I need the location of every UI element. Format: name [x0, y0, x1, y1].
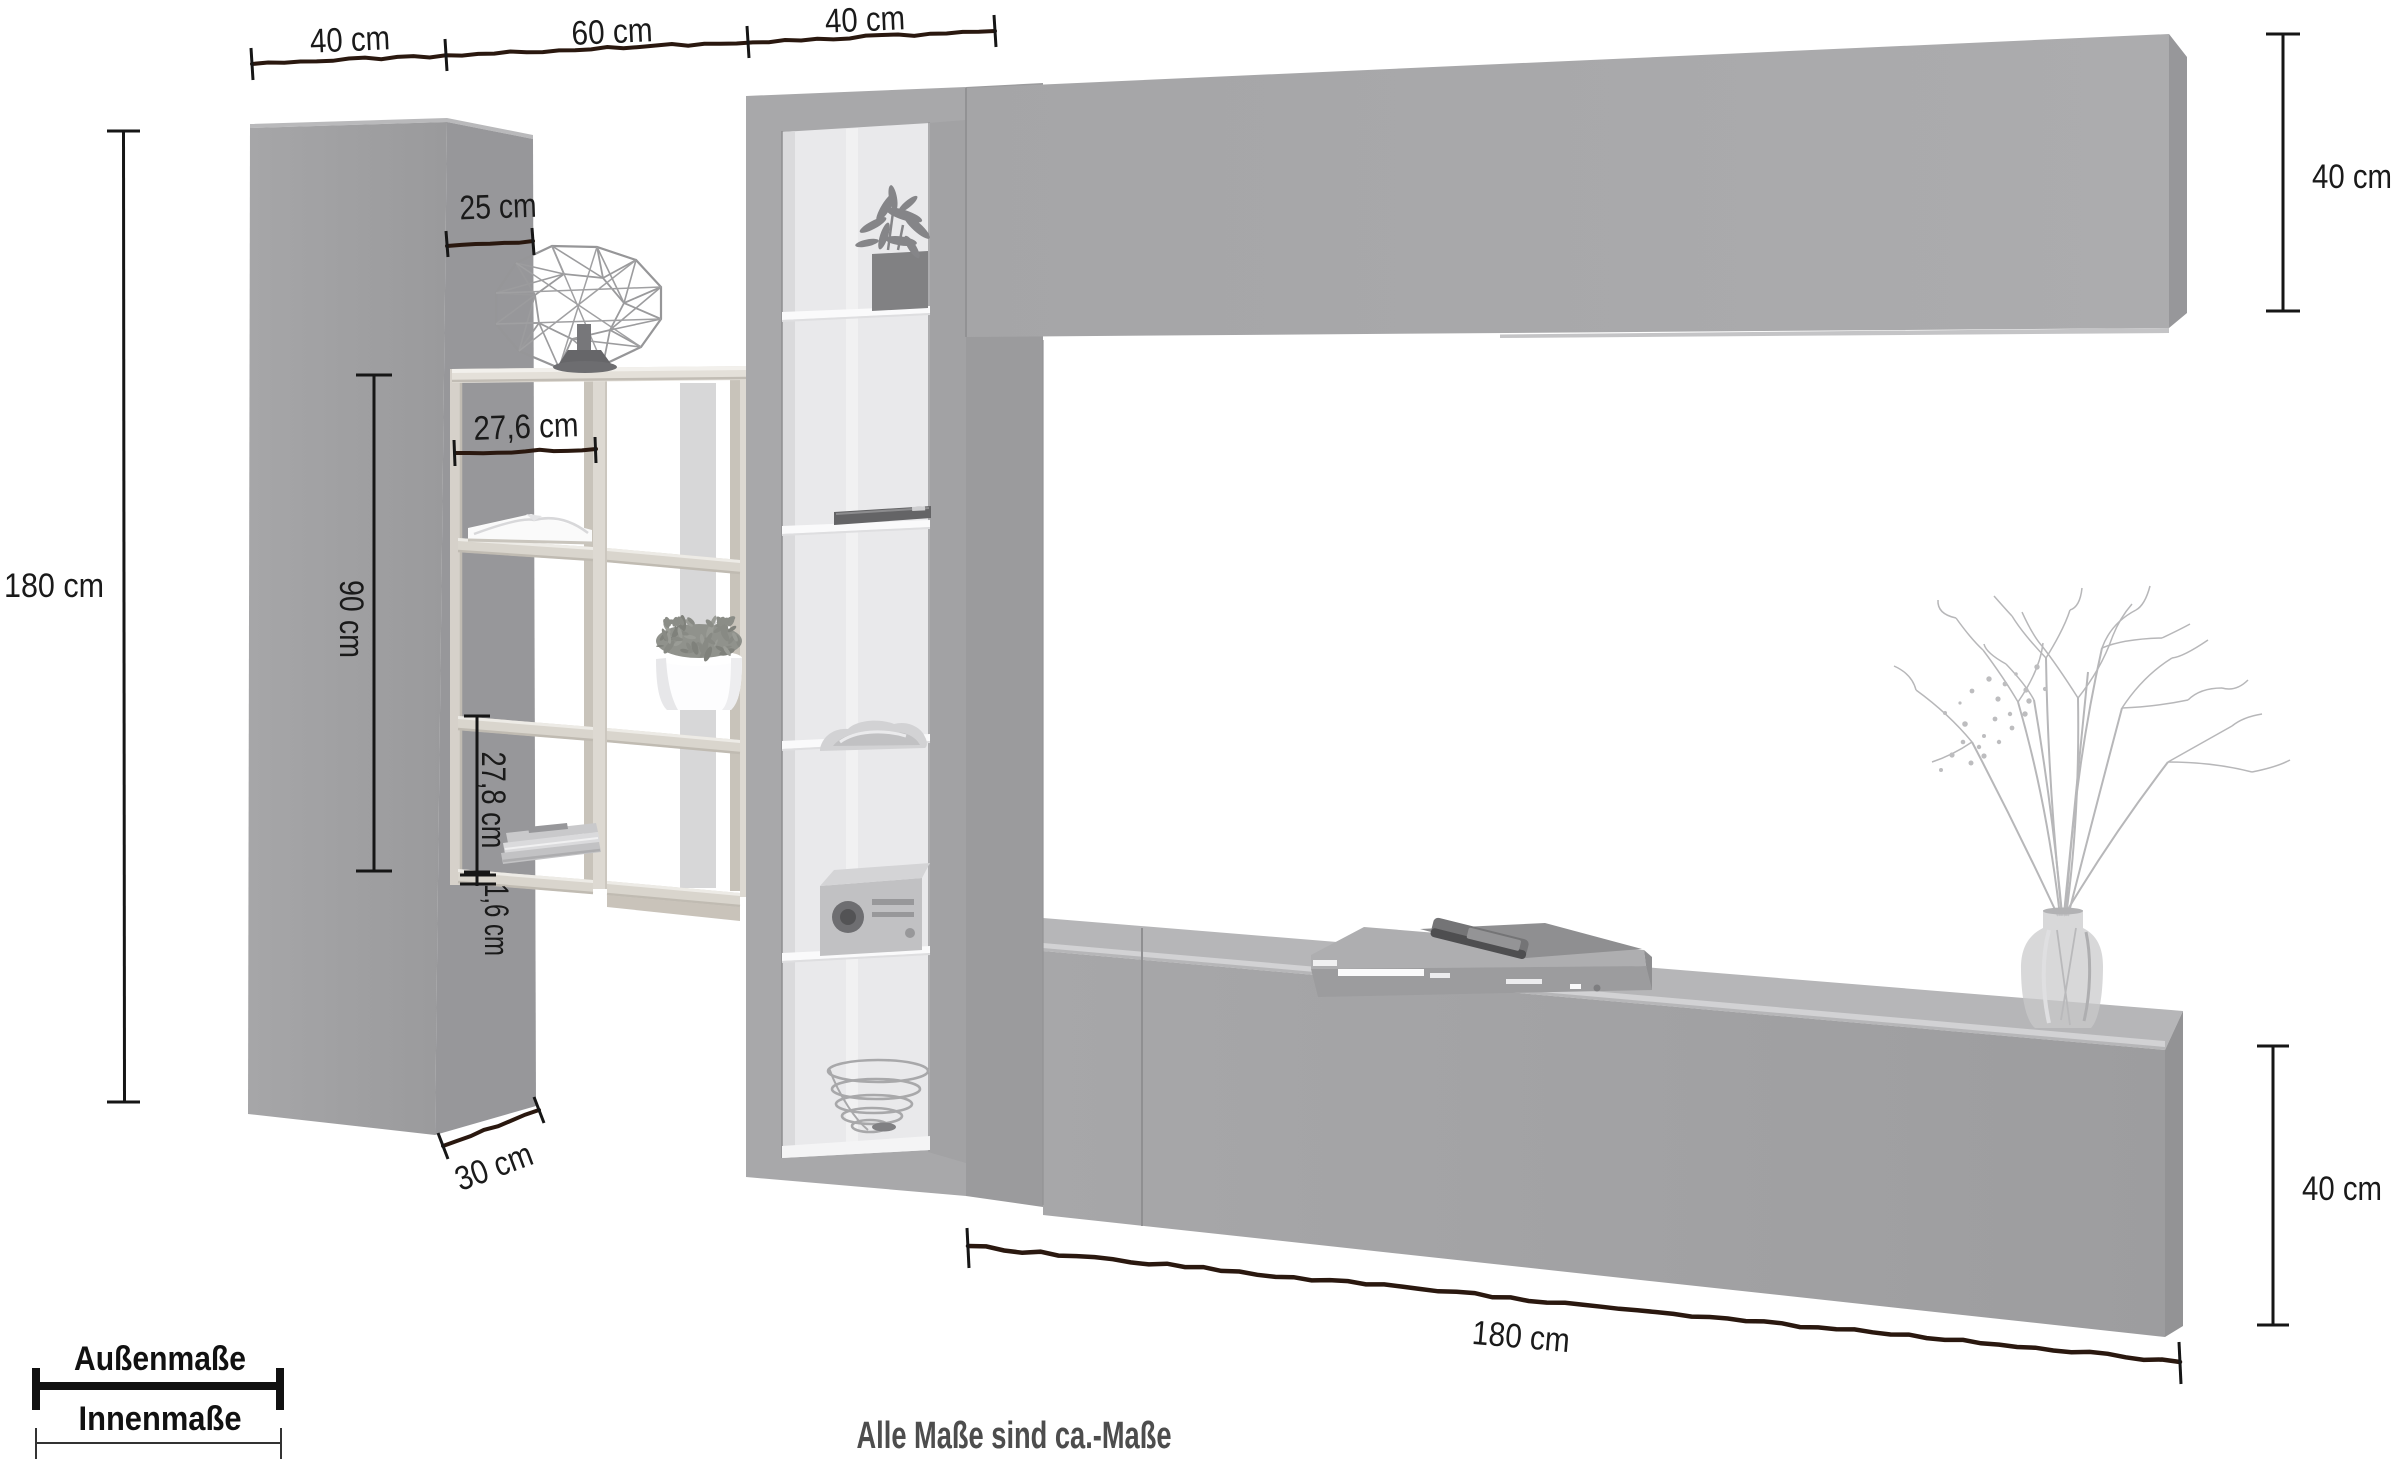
svg-text:40 cm: 40 cm	[2312, 158, 2392, 196]
svg-text:Innenmaße: Innenmaße	[79, 1400, 242, 1438]
svg-text:60 cm: 60 cm	[571, 11, 654, 53]
svg-text:Alle Maße sind ca.-Maße: Alle Maße sind ca.-Maße	[857, 1415, 1172, 1457]
svg-text:27,8 cm: 27,8 cm	[474, 752, 512, 849]
svg-text:Außenmaße: Außenmaße	[74, 1340, 246, 1378]
svg-text:40 cm: 40 cm	[824, 0, 906, 41]
svg-text:180 cm: 180 cm	[4, 567, 104, 605]
svg-text:40 cm: 40 cm	[309, 19, 391, 61]
svg-text:40 cm: 40 cm	[2302, 1170, 2382, 1208]
svg-text:90 cm: 90 cm	[332, 580, 370, 658]
svg-text:27,6 cm: 27,6 cm	[473, 406, 579, 448]
svg-text:25 cm: 25 cm	[459, 187, 537, 228]
svg-text:1,6 cm: 1,6 cm	[477, 884, 515, 956]
